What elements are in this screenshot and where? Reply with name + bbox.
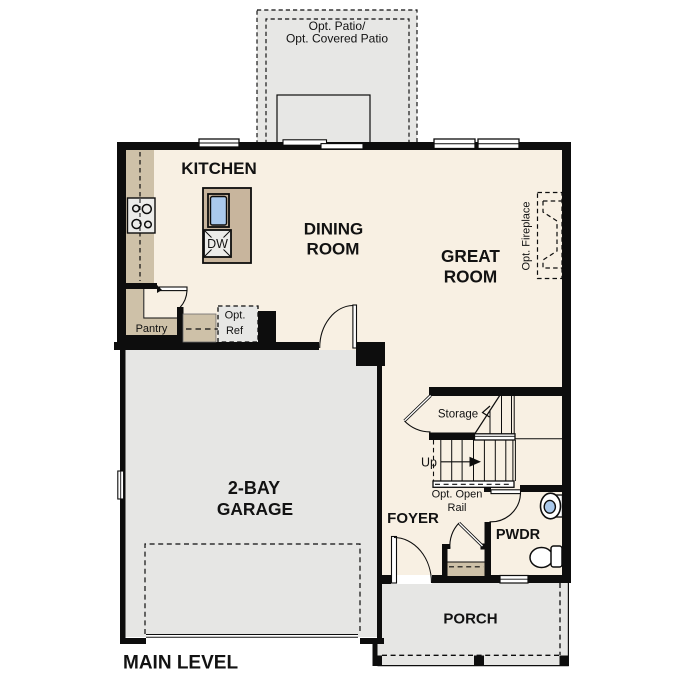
svg-text:PORCH: PORCH [443, 611, 497, 628]
svg-text:DINING: DINING [304, 220, 364, 239]
svg-text:Pantry: Pantry [136, 323, 168, 335]
svg-text:Rail: Rail [448, 502, 467, 514]
svg-text:ROOM: ROOM [444, 267, 497, 287]
svg-text:ROOM: ROOM [307, 240, 360, 259]
svg-text:Up: Up [421, 456, 437, 470]
svg-text:FOYER: FOYER [387, 510, 439, 527]
svg-text:PWDR: PWDR [496, 527, 541, 543]
svg-text:Opt. Open: Opt. Open [432, 489, 483, 501]
svg-text:Ref: Ref [226, 325, 244, 337]
svg-text:Storage: Storage [438, 409, 478, 421]
svg-text:Opt.: Opt. [225, 310, 246, 322]
svg-text:Opt. Covered Patio: Opt. Covered Patio [286, 32, 388, 46]
svg-text:Opt. Fireplace: Opt. Fireplace [521, 201, 533, 270]
svg-text:DW: DW [207, 237, 228, 251]
svg-text:MAIN LEVEL: MAIN LEVEL [123, 653, 238, 674]
svg-text:KITCHEN: KITCHEN [181, 159, 257, 178]
svg-text:2-BAY: 2-BAY [228, 478, 280, 498]
svg-text:GARAGE: GARAGE [217, 499, 293, 519]
svg-text:GREAT: GREAT [441, 246, 500, 266]
